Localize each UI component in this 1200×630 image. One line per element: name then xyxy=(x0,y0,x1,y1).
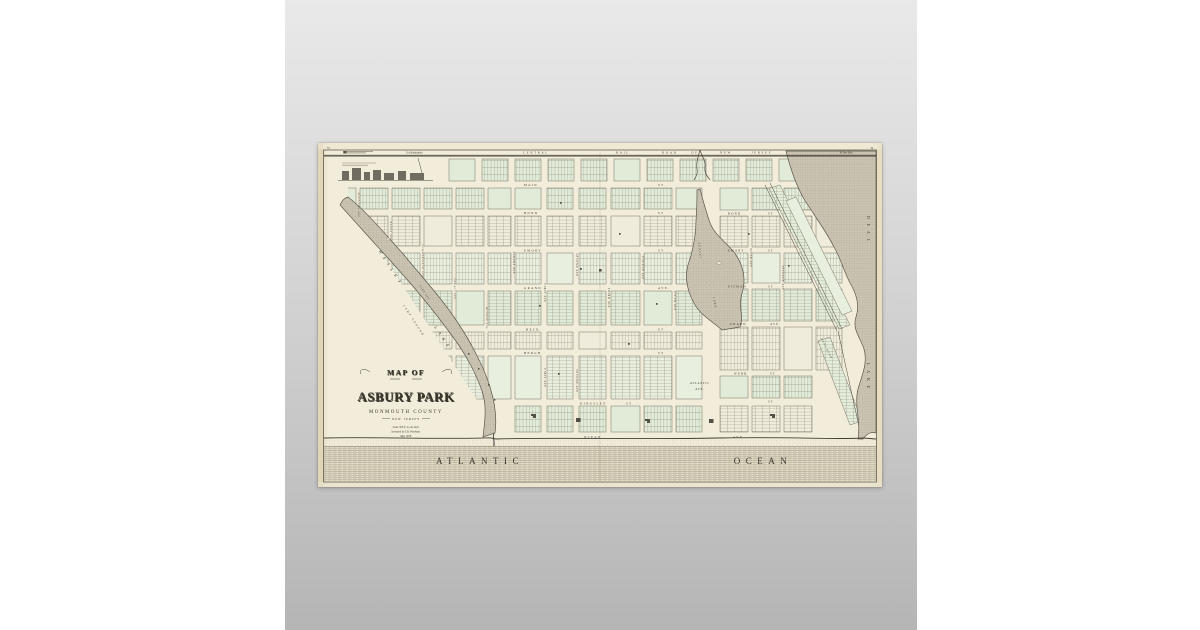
label-north-bond-st-suffix: ST xyxy=(768,212,774,216)
label-atlantic-ave-1: ATLANTIC xyxy=(689,381,710,385)
label-to-new-york: To New York xyxy=(839,151,853,154)
title-map-of: MAP OF xyxy=(387,368,425,377)
title-monmouth-county: MONMOUTH COUNTY xyxy=(369,410,443,415)
label-first-ave-2: FIRST AVE xyxy=(543,367,546,387)
title-new-jersey: NEW JERSEY xyxy=(391,417,420,421)
label-summerfield-ave: SUMMERFIELD AVE xyxy=(421,245,424,278)
label-north-bond-st: BOND xyxy=(728,212,741,216)
label-north-grand-ave-suffix: AVE. xyxy=(770,322,781,326)
label-rr-road: ROAD xyxy=(662,151,677,155)
label-rr-jersey: JERSEY xyxy=(751,151,772,155)
label-deal-lake-2: LAKE xyxy=(866,363,870,393)
poster-mockup: 33 34 To Philadelphia CENTRAL RAIL ROAD … xyxy=(285,0,917,630)
label-rr-new: NEW xyxy=(720,151,732,155)
label-bangs-ave: BANGS AVE xyxy=(389,221,392,240)
label-emory-st: EMORY xyxy=(524,249,542,253)
label-emory-st-suffix: ST xyxy=(658,249,664,253)
label-main-st-suffix: ST xyxy=(658,183,664,187)
label-sixth-ave: SIXTH AVE xyxy=(749,248,752,268)
label-ocean-ave: OCEAN xyxy=(584,435,602,439)
label-pitman-st-suffix: ST xyxy=(768,285,774,289)
label-webb-st: WEBB xyxy=(734,372,747,376)
map-sheet: 33 34 To Philadelphia CENTRAL RAIL ROAD … xyxy=(318,143,882,487)
label-seventh-ave: SEVENTH AVE xyxy=(781,265,784,290)
label-heck-st: HECK xyxy=(526,328,540,332)
label-grand-ave: GRAND xyxy=(524,286,542,290)
label-pitman-st: PITMAN xyxy=(728,285,747,289)
label-north-grand-ave: GRAND xyxy=(730,322,747,326)
label-webb-st-suffix: ST xyxy=(770,372,776,376)
label-mattison-ave: MATTISON AVE xyxy=(357,191,360,217)
railroad-blocks xyxy=(449,159,838,181)
publisher-imprint xyxy=(343,151,373,153)
label-sewall-ave: SEWALL AVE xyxy=(453,279,456,300)
label-rr-central: CENTRAL xyxy=(523,151,549,155)
label-to-philadelphia: To Philadelphia xyxy=(406,151,423,154)
north-grid-lower xyxy=(720,376,812,432)
label-bond-st-suffix: ST xyxy=(658,211,664,215)
depot-vignette xyxy=(338,158,433,181)
label-bond-st: BOND xyxy=(524,211,538,215)
label-bergh-st-suffix: ST xyxy=(658,351,664,355)
label-deal-lake-1: DEAL xyxy=(866,216,870,246)
label-atlantic-ave-2: AVE. xyxy=(694,387,704,391)
page-background: 33 34 To Philadelphia CENTRAL RAIL ROAD … xyxy=(0,0,1200,630)
label-bergh-st: BERGH xyxy=(524,351,542,355)
label-grand-ave-suffix: AVE. xyxy=(658,286,670,290)
label-kingsley-st-suffix: ST xyxy=(626,402,632,406)
label-heck-st-suffix: ST xyxy=(658,328,664,332)
label-north-emory-st-suffix: ST xyxy=(768,249,774,253)
label-first-ave: FIRST AVE xyxy=(543,282,546,302)
title-note-surveyor: Surveyed by T.B. Woolman. xyxy=(391,431,421,434)
title-note-date: May 1878. xyxy=(399,435,412,438)
label-second-ave: SECOND AVE xyxy=(575,253,578,276)
label-fifth-ave: FIFTH AVE xyxy=(673,290,676,311)
label-third-ave: THIRD AVE xyxy=(607,288,610,308)
label-munroe-ave: MUNROE AVE xyxy=(485,306,488,329)
label-second-ave-2: SECOND AVE xyxy=(575,369,578,392)
title-asbury-park: ASBURY PARK xyxy=(357,389,455,404)
label-north-emory-st: EMORY xyxy=(728,249,745,253)
label-rr-of: OF xyxy=(691,151,698,155)
title-note-scale: Scale 300 ft. to one inch. xyxy=(393,426,420,429)
title-block: MAP OF MAP OF ASBURY PARK ASBURY PARK MO… xyxy=(357,368,455,438)
label-main-st: MAIN xyxy=(524,183,538,187)
label-rr-rail: RAIL xyxy=(616,151,630,155)
label-fourth-ave: FOURTH AVE xyxy=(641,255,644,279)
label-ocean-ave-suffix: AVE. xyxy=(733,435,745,439)
label-kingsley-st: KINGSLEY xyxy=(580,402,607,406)
label-asbury-ave: ASBURY AVE xyxy=(512,251,515,275)
label-atlantic-ocean-2: OCEAN xyxy=(734,456,793,466)
label-atlantic-ocean-1: ATLANTIC xyxy=(436,456,524,466)
label-st-only: ST xyxy=(768,400,774,404)
label-camp-ground: CAMP GROUND xyxy=(402,305,425,337)
asbury-park-map: 33 34 To Philadelphia CENTRAL RAIL ROAD … xyxy=(318,143,882,487)
